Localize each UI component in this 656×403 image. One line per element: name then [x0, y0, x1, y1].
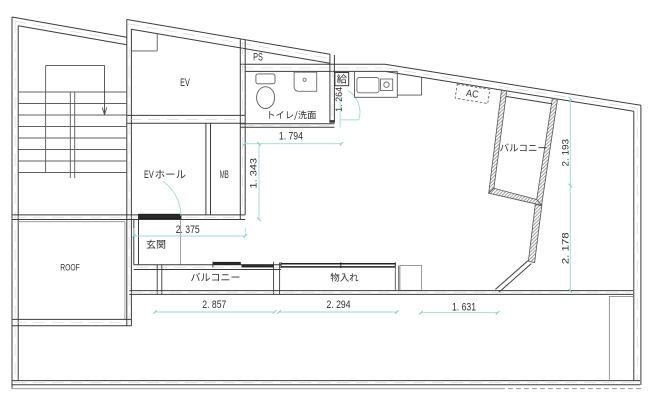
- svg-text:AC: AC: [465, 88, 479, 101]
- svg-text:1. 631: 1. 631: [452, 301, 476, 313]
- svg-text:EV: EV: [144, 169, 154, 181]
- svg-text:2. 193: 2. 193: [561, 139, 571, 167]
- svg-text:1. 264: 1. 264: [334, 87, 344, 112]
- svg-text:2. 375: 2. 375: [176, 224, 200, 236]
- svg-text:2. 294: 2. 294: [327, 299, 351, 311]
- svg-text:1. 343: 1. 343: [248, 158, 258, 189]
- svg-text:2. 178: 2. 178: [561, 232, 571, 264]
- svg-text:PS: PS: [253, 51, 263, 63]
- svg-text:EV: EV: [180, 77, 190, 89]
- svg-text:1. 794: 1. 794: [279, 130, 303, 142]
- svg-text:2. 857: 2. 857: [202, 299, 226, 311]
- svg-text:ROOF: ROOF: [60, 263, 80, 273]
- svg-text:MB: MB: [220, 169, 229, 181]
